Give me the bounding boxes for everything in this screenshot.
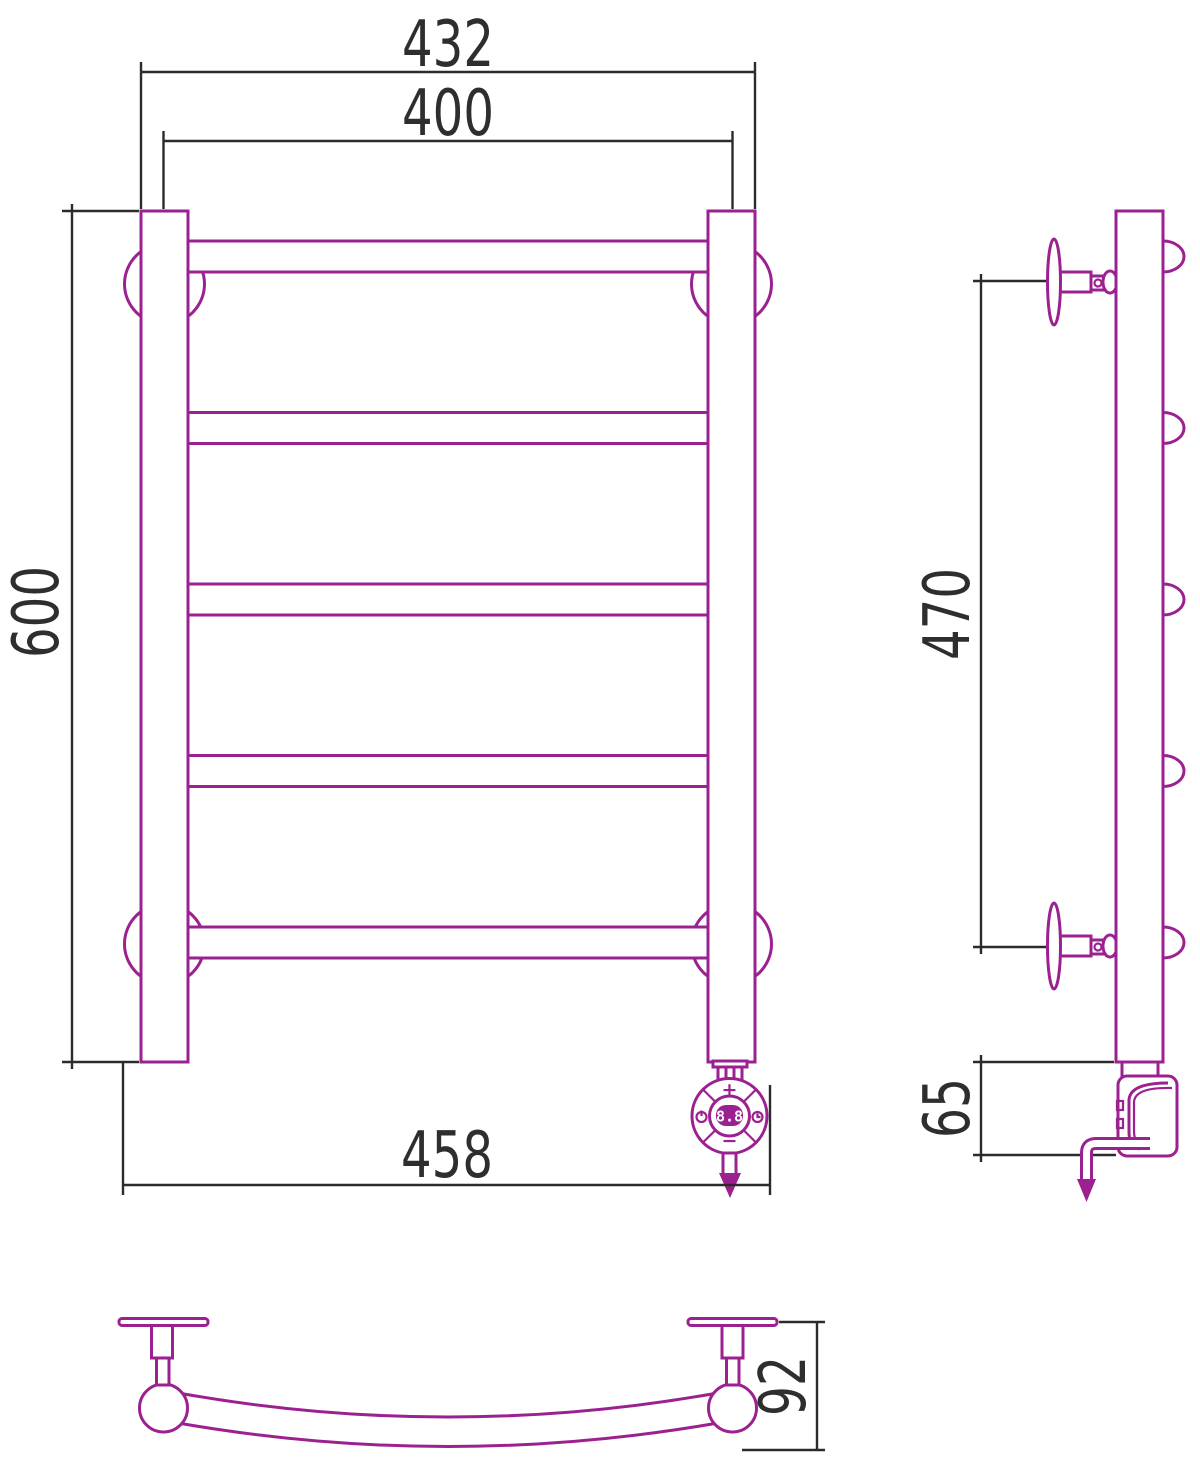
- controller-dial: 8.8 + −: [692, 1079, 767, 1154]
- rail-right: [708, 211, 755, 1062]
- side-wall-bracket-bottom: [1048, 903, 1118, 989]
- minus-button: −: [722, 1130, 738, 1152]
- rung-4: [174, 756, 722, 787]
- side-rail: [1116, 211, 1163, 1062]
- dim-outer-width: 432: [402, 8, 494, 82]
- cable-arrow-side: [1077, 1179, 1096, 1202]
- display-value: 8.8: [716, 1108, 743, 1126]
- top-wall-bracket-left: [119, 1319, 208, 1386]
- side-view: [1048, 211, 1185, 1156]
- front-view: 8.8 + −: [125, 211, 772, 1198]
- side-dimensions: 470 65: [911, 274, 1116, 1162]
- rung-5: [174, 927, 722, 958]
- top-rail-left: [140, 1384, 188, 1432]
- top-view: [119, 1319, 777, 1447]
- rung-3: [174, 584, 722, 615]
- plus-button: +: [722, 1079, 738, 1101]
- dim-heater-depth: 65: [911, 1078, 985, 1138]
- dim-overall-width: 458: [401, 1119, 493, 1193]
- dim-height: 600: [0, 566, 74, 658]
- top-dimensions: 92: [742, 1322, 825, 1450]
- rung-2: [174, 413, 722, 444]
- dim-depth: 92: [747, 1356, 821, 1416]
- dim-axis-width: 400: [402, 77, 494, 151]
- power-cable-front: [719, 1153, 741, 1198]
- drawing-canvas: 8.8 + − 432 400: [0, 0, 1200, 1469]
- rung-1: [174, 241, 722, 272]
- side-wall-bracket-top: [1048, 239, 1118, 325]
- rail-left: [141, 211, 188, 1062]
- dim-mount-span: 470: [911, 568, 985, 660]
- technical-drawing: 8.8 + − 432 400: [0, 0, 1200, 1469]
- top-curved-bar: [178, 1394, 718, 1447]
